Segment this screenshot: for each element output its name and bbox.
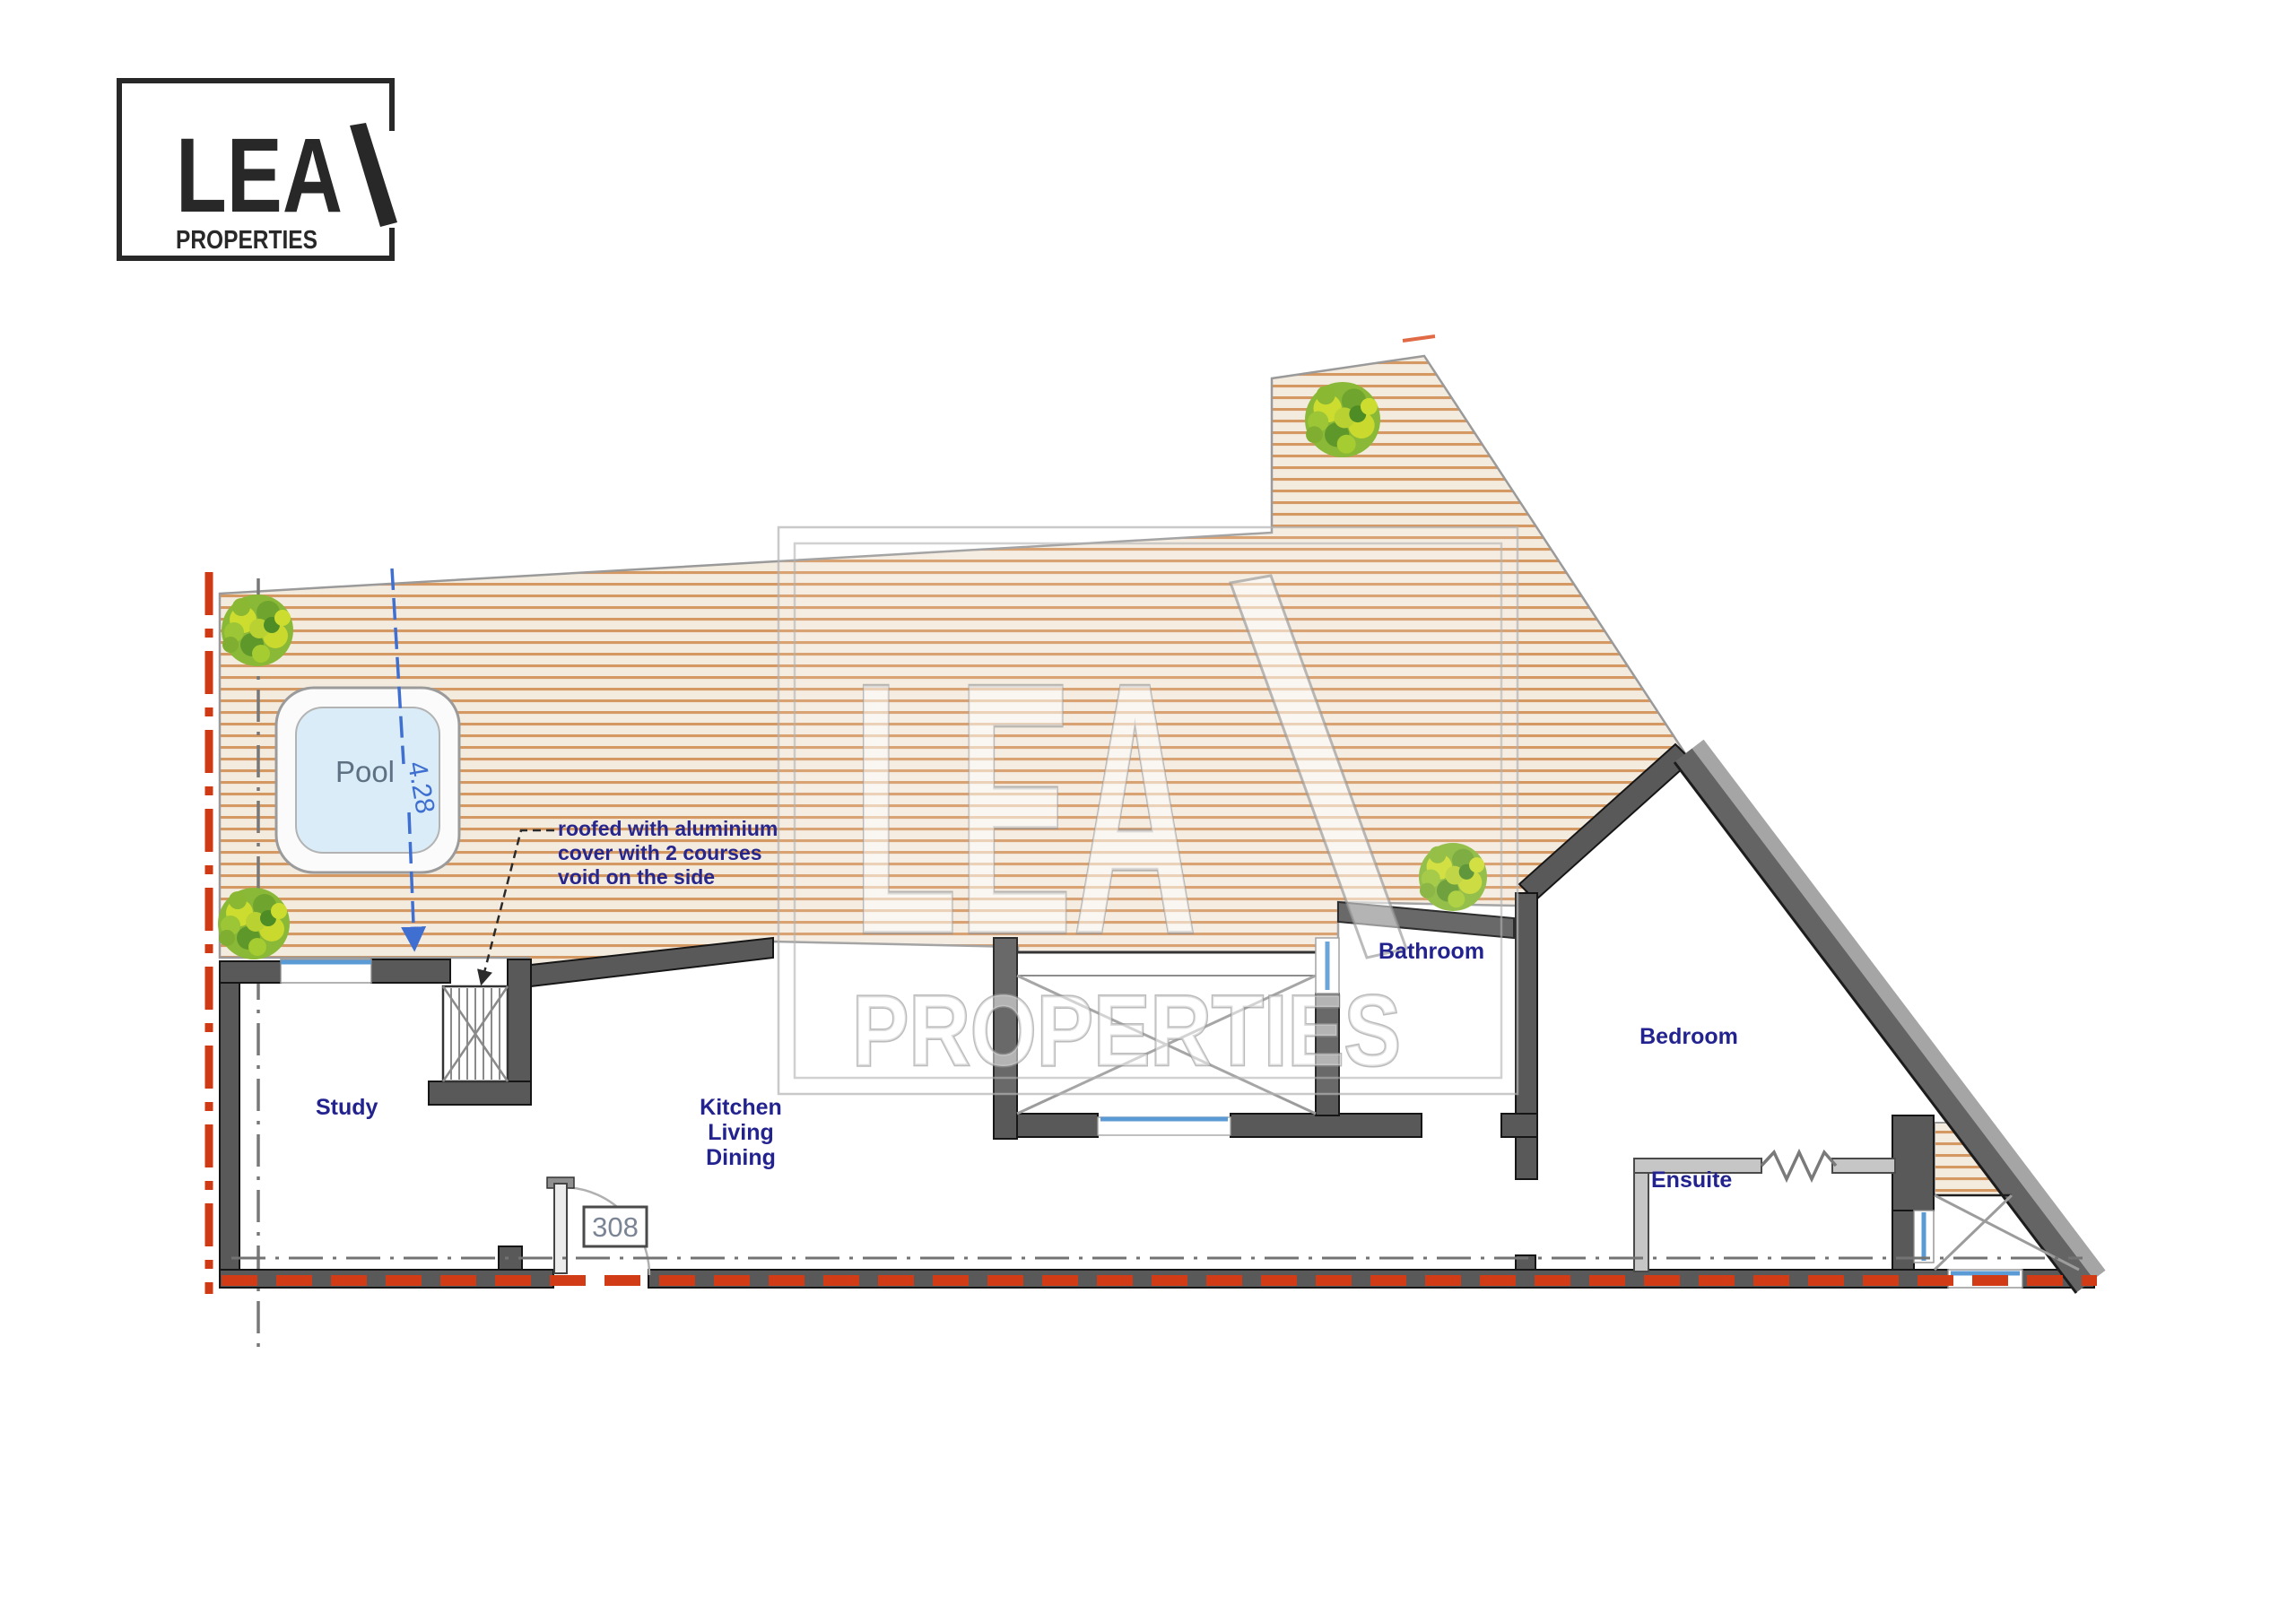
study-label: Study xyxy=(316,1095,378,1120)
ensuite-label: Ensuite xyxy=(1651,1167,1732,1193)
ensuite-wall-break-symbol xyxy=(1761,1152,1836,1179)
bush-icon xyxy=(1305,382,1380,457)
logo-brand-text: LEA xyxy=(176,117,343,235)
floorplan-drawing: LEA PROPERTIES Pool Study Kitchen Living… xyxy=(0,0,2296,1623)
annotation-line3: void on the side xyxy=(558,865,715,889)
deck-edge-mark-red xyxy=(1403,336,1435,341)
wall-divider-lower xyxy=(1892,1211,1914,1271)
roof-void-shaft xyxy=(443,986,508,1081)
window-bedroom-right xyxy=(1914,1211,1934,1263)
annotation-line1: roofed with aluminium xyxy=(558,817,778,840)
watermark-subtitle-text: PROPERTIES xyxy=(852,975,1401,1087)
wall-ensuite-left xyxy=(1634,1159,1648,1271)
annotation-line2: cover with 2 courses xyxy=(558,841,762,864)
wall-divider-upper xyxy=(1892,1115,1934,1211)
watermark: LEA PROPERTIES xyxy=(778,527,1518,1094)
wall-study-top-a xyxy=(220,961,281,983)
logo-slash-icon xyxy=(350,123,397,227)
door-number-label: 308 xyxy=(592,1211,639,1243)
wall-bedroom-left xyxy=(1516,893,1537,1115)
kitchen-label-line1: Kitchen xyxy=(700,1095,782,1120)
kitchen-label-line2: Living xyxy=(708,1120,774,1145)
window-study xyxy=(281,959,371,983)
bush-icon xyxy=(222,595,293,666)
wall-bedroom-left-lower xyxy=(1516,1137,1537,1179)
wall-shaft-bottom xyxy=(429,1081,531,1105)
pool-label: Pool xyxy=(335,755,395,788)
wall-diagonal-main xyxy=(1683,755,2085,1286)
window-void-door xyxy=(1098,1117,1231,1135)
wall-bedroom-left-jog xyxy=(1501,1114,1537,1137)
wall-void-bottom-left xyxy=(1017,1114,1098,1137)
wall-bathroom-bottom xyxy=(1231,1114,1422,1137)
bedroom-label: Bedroom xyxy=(1639,1024,1738,1049)
floorplan-canvas: LEA PROPERTIES Pool Study Kitchen Living… xyxy=(0,0,2296,1623)
bush-icon xyxy=(218,888,290,959)
company-logo: LEA PROPERTIES xyxy=(119,81,397,258)
watermark-brand-text: LEA xyxy=(852,608,1197,1009)
wall-study-left xyxy=(220,961,239,1284)
wall-ensuite-top-b xyxy=(1832,1159,1895,1173)
door-leaf xyxy=(554,1184,567,1273)
kitchen-label-line3: Dining xyxy=(706,1145,776,1170)
wall-study-top-b xyxy=(371,959,450,983)
wall-bedroom-diagonal xyxy=(1674,746,2097,1293)
bathroom-label: Bathroom xyxy=(1378,939,1484,964)
logo-subtitle-text: PROPERTIES xyxy=(176,226,317,255)
